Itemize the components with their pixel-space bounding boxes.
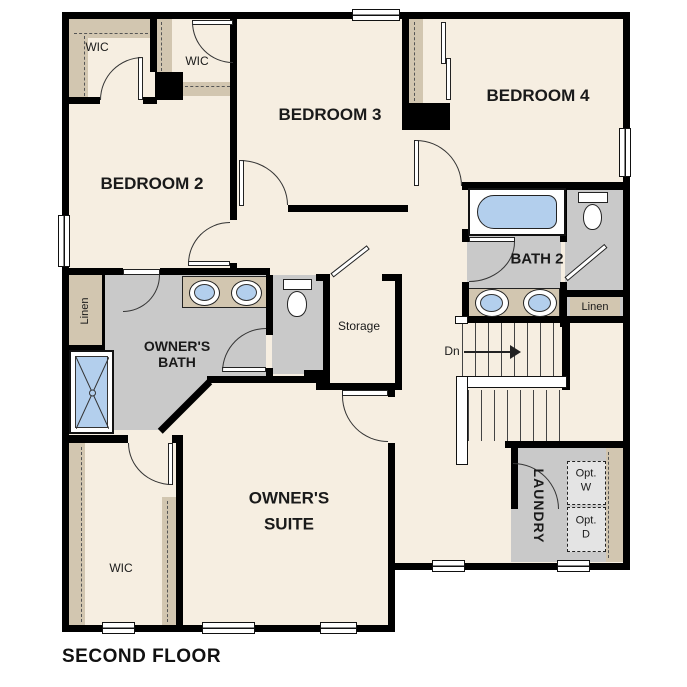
closet-rod-line xyxy=(414,22,415,101)
wall xyxy=(382,274,402,281)
room-label-owners-bath-line1: OWNER'S xyxy=(144,338,210,354)
wall-exterior-right xyxy=(623,12,630,570)
room-label-bedroom3: BEDROOM 3 xyxy=(279,105,382,125)
sink-basin xyxy=(480,294,503,312)
toilet-icon xyxy=(287,291,307,317)
wall-bedroom2-south xyxy=(160,268,270,275)
window xyxy=(320,622,357,634)
wall-exterior-top xyxy=(62,12,630,19)
closet-rod-line xyxy=(185,86,230,87)
window xyxy=(432,560,465,572)
window xyxy=(557,560,590,572)
wall-linen-east xyxy=(102,275,105,345)
bedroom4-closet-shelf xyxy=(408,19,423,103)
room-label-bedroom4: BEDROOM 4 xyxy=(487,86,590,106)
wall xyxy=(69,97,100,104)
window xyxy=(58,215,70,267)
stairs-lower-flight xyxy=(468,390,564,441)
closet-rod-line xyxy=(161,22,162,71)
room-label-wic2: WIC xyxy=(185,54,208,68)
opt-washer-line1: Opt. xyxy=(576,467,597,481)
sink-basin xyxy=(528,294,551,312)
stairs-down-label: Dn xyxy=(444,344,459,358)
floor-plan: WIC WIC BEDROOM 2 BEDROOM 3 BEDROOM 4 BA… xyxy=(0,0,687,687)
room-label-wic-owner: WIC xyxy=(109,561,132,575)
wall-exterior-left xyxy=(62,12,69,632)
sink-basin xyxy=(236,284,257,301)
stairs-nosing xyxy=(455,316,468,324)
wall-wic-owner-east xyxy=(176,443,183,625)
wic1-shelf xyxy=(69,19,88,100)
toilet-icon xyxy=(283,279,312,290)
stairs-down-arrow-icon xyxy=(510,345,521,359)
wall-bath2-south xyxy=(462,316,623,323)
wall-suite-east xyxy=(388,443,395,632)
wall-bedroom3-south xyxy=(288,205,408,212)
wall-linen-bath2 xyxy=(563,290,623,297)
toilet-icon xyxy=(583,204,602,230)
page-title: SECOND FLOOR xyxy=(62,646,221,668)
wall-owners-wc xyxy=(266,275,273,335)
shower-glass-x xyxy=(76,357,109,429)
wall xyxy=(316,274,330,281)
room-label-linen-hall: Linen xyxy=(79,298,91,325)
wall-suite-east xyxy=(388,390,395,397)
stairs-landing-rail xyxy=(456,376,567,388)
wall xyxy=(143,97,157,104)
room-label-owners-suite-line2: SUITE xyxy=(249,511,330,537)
wic-owner-rod xyxy=(162,497,176,625)
wall-wic-owner-north xyxy=(172,435,183,443)
opt-washer-label: Opt. W xyxy=(576,467,597,496)
opt-dryer-line2: D xyxy=(576,528,597,542)
wall xyxy=(402,19,409,103)
opt-dryer-label: Opt. D xyxy=(576,514,597,543)
wic2-shelf xyxy=(182,82,233,96)
bathtub-icon xyxy=(477,195,557,229)
wic-owner-rod xyxy=(69,443,85,625)
closet-rod-line xyxy=(81,447,82,622)
stairs-down-line xyxy=(464,351,512,353)
window xyxy=(102,622,135,634)
opt-washer-line2: W xyxy=(576,481,597,495)
wall-block xyxy=(402,103,450,130)
stairs-side-rail xyxy=(456,376,468,465)
room-label-owners-bath: OWNER'S BATH xyxy=(144,338,210,370)
window xyxy=(202,622,255,634)
room-label-wic1: WIC xyxy=(85,40,108,54)
room-label-storage: Storage xyxy=(338,319,380,333)
wall-laundry-north xyxy=(505,441,623,448)
room-label-owners-suite-line1: OWNER'S xyxy=(249,486,330,512)
sink-basin xyxy=(194,284,215,301)
opt-dryer-line1: Opt. xyxy=(576,514,597,528)
toilet-icon xyxy=(578,192,608,203)
room-label-owners-bath-line2: BATH xyxy=(144,354,210,370)
window xyxy=(352,9,400,21)
room-label-bedroom2: BEDROOM 2 xyxy=(101,174,204,194)
room-label-owners-suite: OWNER'S SUITE xyxy=(249,486,330,537)
closet-rod-line xyxy=(74,33,148,34)
wall-storage-south xyxy=(316,383,402,390)
window xyxy=(619,128,631,177)
wall-block xyxy=(155,72,183,100)
wall-exterior-bottom-right xyxy=(395,563,630,570)
room-label-laundry: LAUNDRY xyxy=(531,469,547,544)
wall-storage-west xyxy=(323,274,330,390)
slider-door-leaf xyxy=(446,58,451,100)
wall-owners-bath-south xyxy=(207,376,330,383)
wic2-shelf xyxy=(155,19,172,72)
wall xyxy=(150,19,157,72)
wall-bedroom2-south xyxy=(62,268,123,275)
wall-wic-owner-north xyxy=(69,435,128,443)
closet-rod-line xyxy=(608,452,609,558)
room-label-bath2: BATH 2 xyxy=(510,250,563,267)
room-label-linen-bath2: Linen xyxy=(582,301,609,313)
shower-icon xyxy=(75,356,108,428)
wall-storage-east xyxy=(395,274,402,390)
closet-rod-line xyxy=(167,501,168,622)
